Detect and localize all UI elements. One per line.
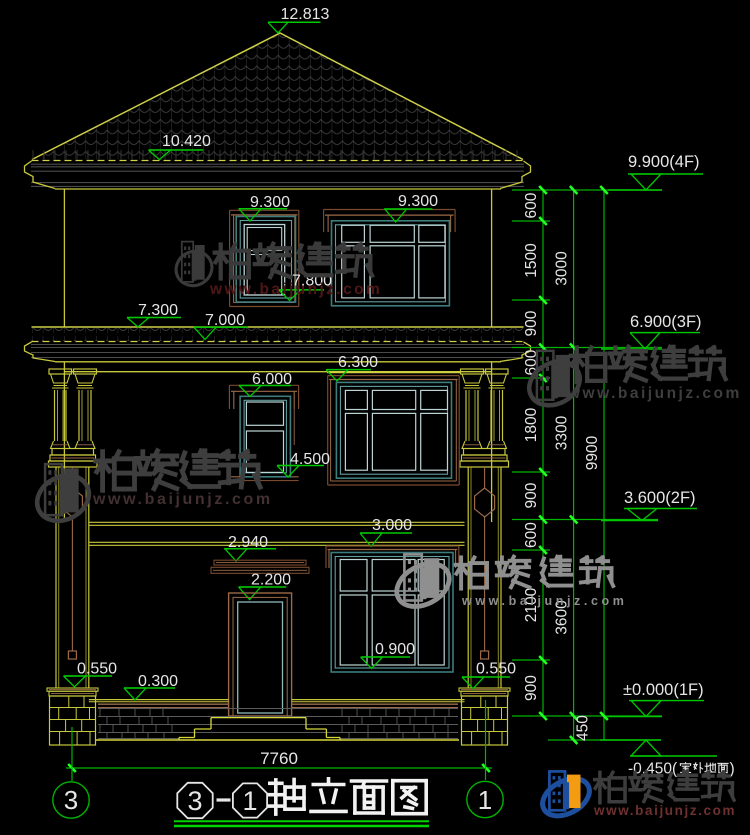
svg-text:7.300: 7.300 [138, 302, 178, 319]
svg-text:3000: 3000 [554, 251, 571, 286]
svg-text:12.813: 12.813 [281, 6, 330, 23]
svg-text:±0.000(1F): ±0.000(1F) [623, 681, 704, 699]
svg-text:6.900(3F): 6.900(3F) [630, 313, 702, 331]
svg-text:9.300: 9.300 [398, 193, 438, 210]
svg-text:www.baijunjz.com: www.baijunjz.com [209, 281, 382, 298]
svg-text:3.000: 3.000 [372, 517, 412, 534]
svg-text:3: 3 [187, 786, 202, 816]
svg-text:www.baijunjz.com: www.baijunjz.com [593, 803, 736, 818]
svg-text:600: 600 [523, 522, 540, 548]
svg-text:450: 450 [575, 715, 592, 741]
svg-text:600: 600 [523, 192, 540, 218]
svg-text:1800: 1800 [523, 407, 540, 442]
svg-text:6.300: 6.300 [338, 354, 378, 371]
svg-text:2.200: 2.200 [251, 572, 291, 589]
svg-text:www.baijunjz.com: www.baijunjz.com [92, 491, 273, 508]
svg-text:9.900(4F): 9.900(4F) [628, 153, 700, 171]
svg-text:1: 1 [478, 785, 492, 815]
svg-text:0.900: 0.900 [375, 641, 415, 658]
svg-text:0.550: 0.550 [77, 661, 117, 678]
svg-text:www.baijunjz.com: www.baijunjz.com [567, 385, 742, 402]
svg-text:0.550: 0.550 [476, 661, 516, 678]
svg-text:3: 3 [64, 785, 78, 815]
svg-text:900: 900 [523, 482, 540, 508]
svg-text:900: 900 [523, 675, 540, 701]
svg-text:1: 1 [242, 786, 257, 816]
svg-text:900: 900 [523, 310, 540, 336]
svg-text:1500: 1500 [523, 243, 540, 278]
svg-text:www.baijunjz.com: www.baijunjz.com [461, 594, 627, 608]
svg-text:10.420: 10.420 [162, 133, 211, 150]
svg-text:7.000: 7.000 [205, 312, 245, 329]
svg-text:9900: 9900 [584, 435, 601, 470]
svg-text:3.600(2F): 3.600(2F) [624, 489, 696, 507]
svg-text:3300: 3300 [554, 415, 571, 450]
svg-text:7760: 7760 [260, 749, 298, 768]
